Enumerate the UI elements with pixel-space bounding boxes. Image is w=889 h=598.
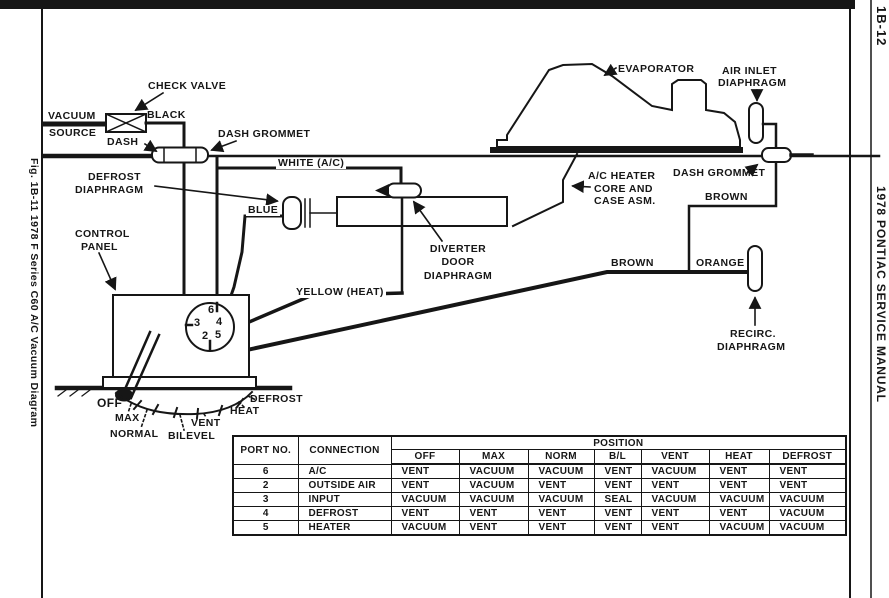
cell-value: VACUUM (528, 464, 594, 479)
label-orange: ORANGE (694, 258, 747, 269)
label-recirc-2: DIAPHRAGM (717, 342, 785, 353)
control-panel-arrow (99, 253, 115, 289)
cell-value: VENT (641, 479, 709, 493)
air-inlet-diaphragm-symbol (749, 103, 776, 149)
cell-value: VACUUM (641, 493, 709, 507)
label-pos-vent: VENT (191, 418, 221, 429)
label-dash: DASH (107, 137, 138, 148)
column-header-max: MAX (459, 450, 528, 465)
defrost-diaphragm-symbol (283, 197, 337, 229)
label-defrost-diaphragm-2: DIAPHRAGM (75, 185, 143, 196)
label-pos-bilevel: BILEVEL (168, 431, 215, 442)
cell-port: 2 (233, 479, 298, 493)
cell-value: SEAL (594, 493, 641, 507)
cell-value: VENT (594, 507, 641, 521)
evaporator-outline (490, 64, 743, 153)
orange-tube (210, 272, 748, 358)
label-air-inlet-1: AIR INLET (722, 66, 777, 77)
cell-value: VENT (769, 464, 846, 479)
label-evaporator: EVAPORATOR (618, 64, 694, 75)
cell-value: VENT (528, 507, 594, 521)
heater-case-outline (337, 154, 577, 226)
label-black: BLACK (147, 110, 186, 121)
cell-value: VACUUM (391, 521, 459, 536)
label-white-ac: WHITE (A/C) (276, 158, 346, 169)
label-dash-grommet-right: DASH GROMMET (673, 168, 765, 179)
cell-value: VENT (391, 507, 459, 521)
label-yellow-heat: YELLOW (HEAT) (294, 287, 386, 298)
cell-value: VACUUM (459, 479, 528, 493)
vacuum-port-table: PORT NO. CONNECTION POSITION OFF MAX NOR… (232, 435, 847, 536)
cell-port: 5 (233, 521, 298, 536)
table-row: 3 INPUT VACUUM VACUUM VACUUM SEAL VACUUM… (233, 493, 846, 507)
cell-value: VACUUM (709, 521, 769, 536)
cell-value: VENT (459, 521, 528, 536)
cell-value: VENT (528, 479, 594, 493)
cell-value: VACUUM (459, 464, 528, 479)
port-3: 3 (194, 318, 200, 329)
column-header-vent: VENT (641, 450, 709, 465)
cell-value: VACUUM (769, 521, 846, 536)
cell-value: VACUUM (459, 493, 528, 507)
label-pos-max: MAX (115, 413, 140, 424)
diverter-diaphragm-symbol (375, 184, 421, 294)
column-header-heat: HEAT (709, 450, 769, 465)
cell-value: VENT (641, 507, 709, 521)
cell-connection: A/C (298, 464, 391, 479)
label-pos-normal: NORMAL (110, 429, 158, 440)
diverter-arrow (414, 202, 442, 241)
cell-connection: OUTSIDE AIR (298, 479, 391, 493)
check-valve-symbol (106, 114, 146, 132)
label-pos-defrost: DEFROST (250, 394, 303, 405)
label-ac-heater-3: CASE ASM. (594, 196, 656, 207)
label-dash-grommet-left: DASH GROMMET (218, 129, 310, 140)
port-2: 2 (202, 331, 208, 342)
cell-value: VENT (641, 521, 709, 536)
column-header-defrost: DEFROST (769, 450, 846, 465)
cell-value: VENT (594, 521, 641, 536)
cell-value: VENT (594, 464, 641, 479)
ac-heater-arrow (573, 186, 590, 187)
control-panel-box (57, 295, 290, 396)
label-pos-heat: HEAT (230, 406, 259, 417)
label-vacuum-source-2: SOURCE (49, 128, 96, 139)
column-header-connection: CONNECTION (298, 436, 391, 464)
cell-value: VENT (528, 521, 594, 536)
label-brown-left: BROWN (609, 258, 656, 269)
cell-value: VACUUM (769, 493, 846, 507)
yellow-tube (228, 293, 402, 331)
label-recirc-1: RECIRC. (730, 329, 776, 340)
label-vacuum-source-1: VACUUM (48, 111, 96, 122)
cell-connection: INPUT (298, 493, 391, 507)
cell-value: VENT (391, 464, 459, 479)
dash-grommet-left-symbol (152, 148, 208, 163)
cell-value: VACUUM (709, 493, 769, 507)
table-row: 4 DEFROST VENT VENT VENT VENT VENT VENT … (233, 507, 846, 521)
column-header-port: PORT NO. (233, 436, 298, 464)
label-defrost-diaphragm-1: DEFROST (88, 172, 141, 183)
cell-port: 6 (233, 464, 298, 479)
figure-caption: Fig. 1B-11 1978 F Series C60 A/C Vacuum … (28, 158, 40, 427)
dash-grommet-left-arrow (212, 141, 236, 150)
manual-title: 1978 PONTIAC SERVICE MANUAL (874, 186, 888, 403)
label-check-valve: CHECK VALVE (148, 81, 226, 92)
label-ac-heater-2: CORE AND (594, 184, 653, 195)
cell-value: VENT (709, 464, 769, 479)
cell-value: VENT (594, 479, 641, 493)
cell-value: VENT (769, 479, 846, 493)
column-header-off: OFF (391, 450, 459, 465)
label-pos-off: OFF (97, 397, 122, 409)
dash-grommet-right-symbol (762, 148, 812, 162)
position-span-header: POSITION (391, 436, 846, 450)
label-air-inlet-2: DIAPHRAGM (718, 78, 786, 89)
cell-connection: HEATER (298, 521, 391, 536)
column-header-bl: B/L (594, 450, 641, 465)
cell-value: VENT (459, 507, 528, 521)
label-control-panel-2: PANEL (81, 242, 118, 253)
cell-value: VACUUM (391, 493, 459, 507)
port-6: 6 (208, 305, 214, 316)
recirc-diaphragm-symbol (748, 246, 762, 291)
cell-value: VACUUM (769, 507, 846, 521)
column-header-norm: NORM (528, 450, 594, 465)
table-row: 5 HEATER VACUUM VENT VENT VENT VENT VACU… (233, 521, 846, 536)
label-diverter-diaphragm: DIVERTER DOOR DIAPHRAGM (420, 243, 496, 283)
label-ac-heater-1: A/C HEATER (588, 171, 655, 182)
label-diverter-line3: DIAPHRAGM (424, 270, 492, 283)
table-row: 2 OUTSIDE AIR VENT VACUUM VENT VENT VENT… (233, 479, 846, 493)
page-number: 1B-12 (874, 6, 889, 46)
dash-arrow (145, 144, 156, 151)
cell-value: VACUUM (528, 493, 594, 507)
table-row-position-header: PORT NO. CONNECTION POSITION (233, 436, 846, 450)
manual-page: CHECK VALVE VACUUM SOURCE BLACK DASH DAS… (0, 0, 889, 598)
cell-value: VENT (709, 507, 769, 521)
label-diverter-line1: DIVERTER (430, 243, 486, 256)
port-4: 4 (216, 317, 222, 328)
label-control-panel-1: CONTROL (75, 229, 130, 240)
evaporator-base-bar (490, 147, 743, 153)
table-row: 6 A/C VENT VACUUM VACUUM VENT VACUUM VEN… (233, 464, 846, 479)
cell-port: 3 (233, 493, 298, 507)
cell-value: VENT (709, 479, 769, 493)
label-brown-right: BROWN (705, 192, 748, 203)
cell-value: VACUUM (641, 464, 709, 479)
port-5: 5 (215, 330, 221, 341)
cell-value: VENT (391, 479, 459, 493)
check-valve-arrow (136, 93, 163, 110)
cell-port: 4 (233, 507, 298, 521)
label-diverter-line2: DOOR (441, 256, 474, 269)
cell-connection: DEFROST (298, 507, 391, 521)
label-blue: BLUE (246, 205, 280, 216)
